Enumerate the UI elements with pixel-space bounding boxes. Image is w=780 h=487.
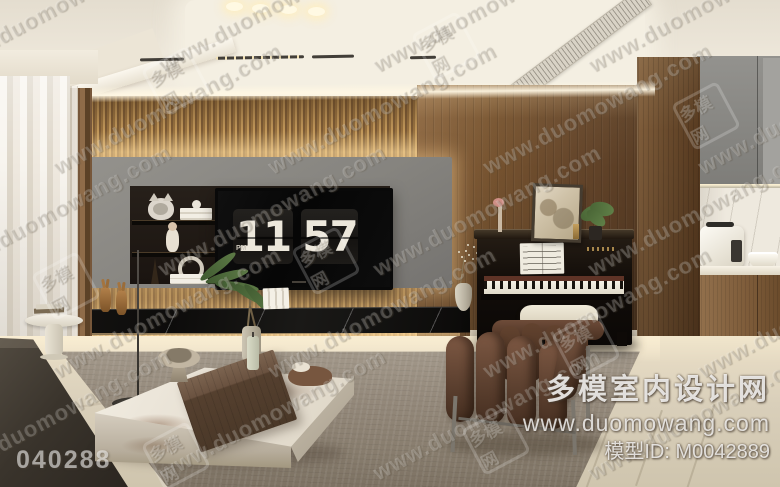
flip-clock-minutes-value: 57: [302, 212, 356, 261]
side-table-base: [40, 354, 68, 360]
flip-clock-minutes: 57: [301, 209, 358, 264]
flower-figurine-blossom: [493, 198, 504, 207]
doll-figurine: [166, 228, 179, 252]
table-sculpture: [288, 366, 332, 386]
rabbit-figurine: [100, 286, 111, 312]
ceiling-spotlight: [280, 5, 297, 14]
piano-keys: [484, 281, 624, 294]
candle-vase: [247, 336, 259, 370]
piano-brand-lettering: [587, 247, 615, 251]
cat-figurine-face: [153, 203, 168, 215]
ceiling-spotlight: [308, 7, 325, 16]
niche-shelf: [132, 252, 216, 257]
stone-cup-vessel: [158, 348, 200, 368]
flip-clock-hours-value: 11: [236, 212, 290, 261]
piano-leg: [617, 332, 627, 346]
flip-clock-hours: 11: [233, 209, 293, 264]
site-name-watermark: 多模室内设计网: [523, 376, 770, 405]
ceiling-spotlight: [252, 4, 269, 13]
armchair-front-cushion: [446, 336, 474, 422]
armchair-front-cushion: [476, 332, 505, 424]
piano-keybed: [481, 294, 627, 300]
branding-watermark-block: 多模室内设计网 www.duomowang.com 模型ID: M0042889: [523, 376, 770, 462]
rice-cooker-control-panel: [731, 240, 742, 262]
rabbit-figurine: [116, 289, 127, 315]
book-stack: [180, 208, 212, 220]
tv-brand-mark: [292, 281, 306, 283]
book-on-side-table: [36, 304, 62, 310]
plant-pot: [589, 226, 602, 240]
side-table-pedestal: [45, 324, 63, 356]
interior-render-scene: 11 57 PM: [0, 0, 780, 487]
gold-ornament: [573, 224, 579, 239]
site-url-watermark: www.duomowang.com: [523, 412, 770, 435]
doll-figurine-head: [168, 222, 177, 231]
image-code-watermark: 040288: [16, 446, 111, 475]
flower-figurine: [498, 204, 502, 232]
dried-flower-sprigs: [452, 254, 476, 284]
books-on-console: [263, 288, 290, 310]
model-id-watermark: 模型ID: M0042889: [523, 442, 770, 462]
ceiling-spotlight: [226, 2, 243, 11]
track-light: [410, 56, 436, 59]
sphere-ornament: [192, 200, 201, 209]
kitchen-side-panel: [763, 58, 780, 186]
floor-lamp-pole: [137, 250, 139, 402]
sheet-music: [520, 243, 565, 275]
rice-cooker-handle: [706, 222, 734, 227]
flip-clock-meridiem: PM: [236, 245, 247, 252]
